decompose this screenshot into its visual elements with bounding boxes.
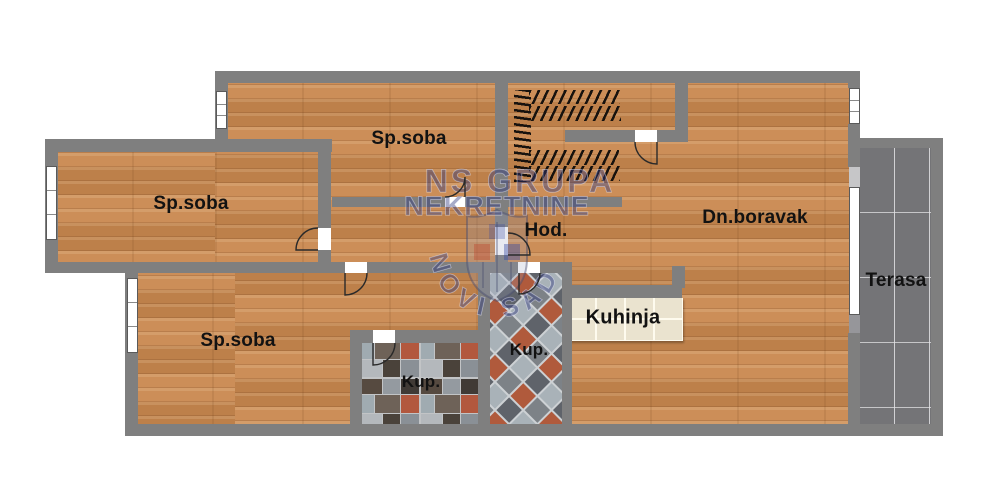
window-living-room	[849, 88, 860, 124]
wall-bath-center-left	[478, 262, 490, 424]
terrace-door-glass	[849, 187, 860, 315]
wall-kitchen	[563, 285, 682, 298]
wall-right-c	[848, 333, 860, 424]
door-opening-bedroom-left	[318, 228, 331, 250]
floorplan: NS GRUPA NEKRETNINE NOVI SAD Sp.soba Sp.…	[0, 0, 991, 485]
wall-hall-top	[332, 197, 622, 207]
window-bedroom-bottom	[127, 278, 138, 353]
wall-top	[215, 71, 860, 83]
room-label-kitchen: Kuhinja	[586, 307, 661, 330]
wall-right-a	[848, 71, 860, 88]
wall-stairs-left	[495, 83, 508, 197]
wall-stairs-right	[675, 83, 688, 142]
stairs-flight-2	[529, 106, 621, 121]
room-label-bathroom-center: Kup.	[510, 340, 549, 360]
room-label-bedroom-top: Sp.soba	[371, 128, 446, 150]
stairs-flight-1	[529, 90, 620, 104]
window-bedroom-left	[46, 166, 57, 240]
floor-main-block	[215, 71, 860, 436]
room-label-terrace: Terasa	[865, 270, 926, 292]
wall-bottom	[125, 424, 858, 436]
room-label-bathroom-bottom: Kup.	[402, 372, 441, 392]
room-label-bedroom-bottom: Sp.soba	[200, 330, 275, 352]
room-label-living-room: Dn.boravak	[702, 207, 807, 229]
room-label-hallway: Hod.	[524, 220, 567, 242]
wall-terrace-bottom	[858, 424, 943, 436]
stairs-flight-3	[529, 150, 619, 165]
wall-bedroom-left-top	[45, 139, 332, 152]
wall-bath-bottom-top	[350, 330, 490, 343]
door-opening-bedroom-top	[445, 197, 465, 207]
wall-stairs-stub	[565, 130, 677, 142]
wall-bath-bottom-left	[350, 343, 362, 436]
stairs-flight-4	[529, 166, 620, 181]
wall-mid-horizontal	[45, 262, 570, 273]
room-label-bedroom-left: Sp.soba	[153, 193, 228, 215]
terrace-door-panel-top	[849, 167, 860, 187]
window-bedroom-top	[216, 91, 227, 129]
wall-kitchen-stub	[672, 266, 685, 288]
door-opening-bath-bottom	[373, 330, 395, 343]
wall-terrace-right	[931, 138, 943, 436]
door-opening-hall	[495, 227, 508, 255]
terrace-door-panel-bottom	[849, 315, 860, 333]
door-opening-bath-center	[518, 262, 540, 273]
door-opening-stairs	[635, 130, 657, 142]
door-opening-bedroom-bottom	[345, 262, 367, 273]
